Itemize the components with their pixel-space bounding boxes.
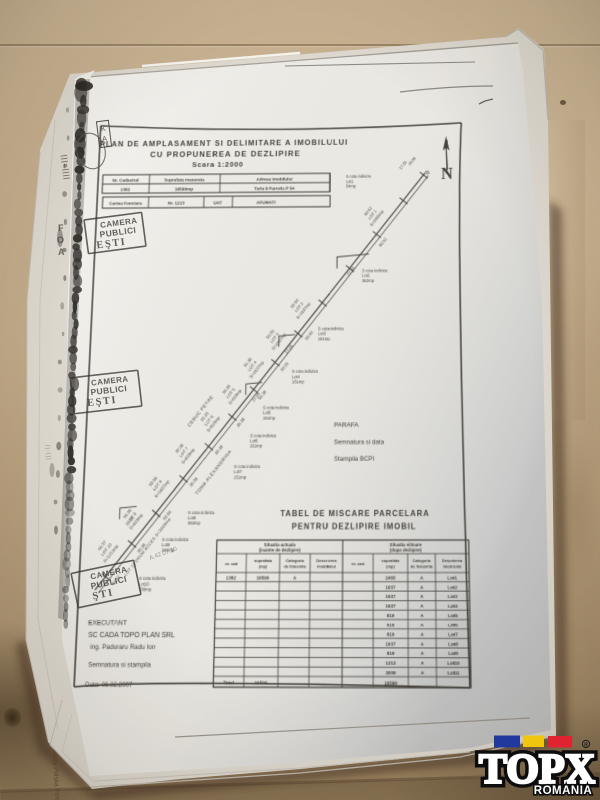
svg-text:ROMANIA: ROMANIA: [534, 785, 592, 797]
